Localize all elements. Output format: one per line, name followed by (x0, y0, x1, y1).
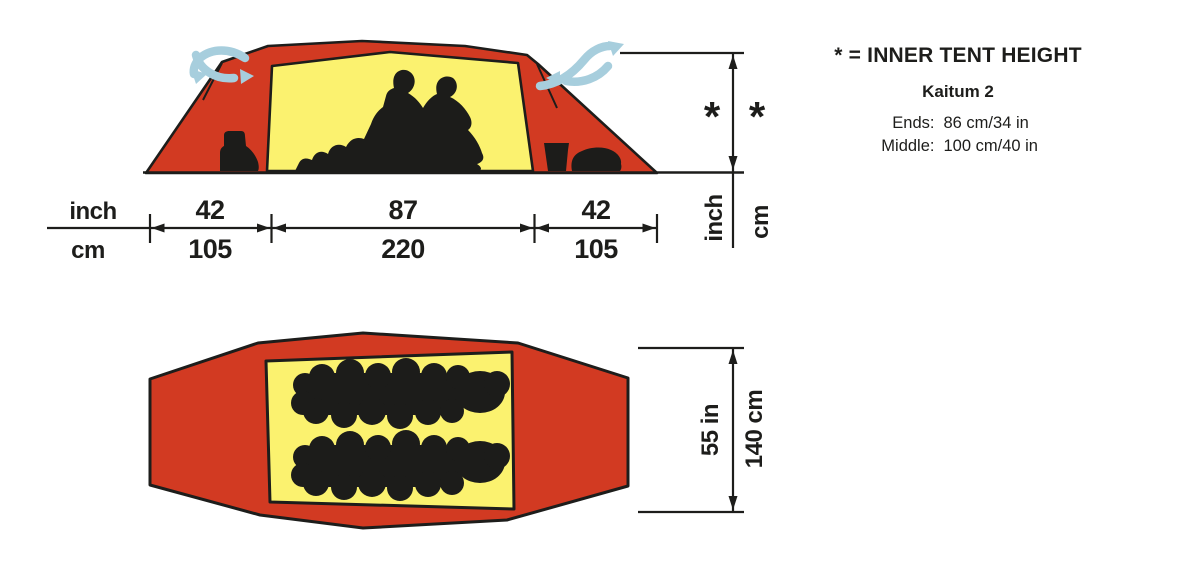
top-depth-dimension (638, 348, 744, 512)
legend-spec-rows: Ends: 86 cm/34 in Middle: 100 cm/40 in (826, 112, 1090, 158)
spec-value-ends: 86 cm/34 in (944, 112, 1062, 135)
width-seg1-inch: 42 (195, 195, 224, 225)
depth-arrowhead-down (729, 496, 738, 510)
height-unit-inch: inch (701, 194, 728, 241)
spec-row-middle: Middle: 100 cm/40 in (826, 135, 1090, 158)
legend: * = INNER TENT HEIGHT Kaitum 2 Ends: 86 … (826, 44, 1090, 158)
width-unit-bottom: cm (71, 237, 105, 264)
spec-value-middle: 100 cm/40 in (944, 135, 1062, 158)
width-seg1-cm: 105 (188, 234, 232, 264)
width-seg3-cm: 105 (574, 234, 618, 264)
depth-label-cm: 140 cm (741, 390, 768, 468)
tent-top-view (150, 333, 628, 528)
height-arrowhead-down (729, 156, 738, 170)
width-unit-top: inch (69, 198, 116, 225)
height-arrowhead-up (729, 55, 738, 69)
tent-side-view (143, 41, 744, 173)
inner-height-asterisk-right: * (749, 93, 766, 140)
arrowhead-left-2 (273, 224, 286, 233)
arrowhead-right-1 (257, 224, 270, 233)
height-unit-cm: cm (747, 205, 774, 239)
side-width-dimension (47, 214, 657, 243)
tent-dimension-diagram: inch cm 42 105 87 220 42 105 * * inch cm (0, 0, 1200, 567)
arrowhead-left-1 (152, 224, 165, 233)
inner-height-asterisk-left: * (704, 93, 721, 140)
tent-model-name: Kaitum 2 (826, 82, 1090, 102)
width-seg2-inch: 87 (388, 195, 417, 225)
arrowhead-right-2 (520, 224, 533, 233)
arrowhead-left-3 (536, 224, 549, 233)
arrowhead-right-3 (643, 224, 656, 233)
spec-label-ends: Ends: (855, 112, 935, 135)
spec-row-ends: Ends: 86 cm/34 in (826, 112, 1090, 135)
legend-title: * = INNER TENT HEIGHT (826, 44, 1090, 68)
width-seg2-cm: 220 (381, 234, 425, 264)
pot-silhouette (544, 143, 569, 171)
width-seg3-inch: 42 (581, 195, 610, 225)
depth-arrowhead-up (729, 350, 738, 364)
spec-label-middle: Middle: (855, 135, 935, 158)
depth-label-in: 55 in (697, 404, 724, 456)
